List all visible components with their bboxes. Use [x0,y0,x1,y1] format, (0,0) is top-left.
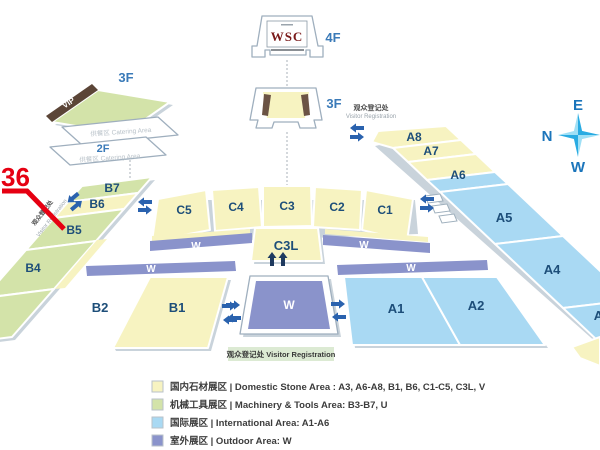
legend-swatch-outdoor [152,435,163,446]
exhibition-floor-plan: WSC 4F 3F VIP 3F 供餐区 Catering Area 2F 供餐… [0,0,600,450]
w-bar-right-1-label: W [359,240,369,251]
hall-a4-label: A4 [544,262,561,277]
hall-b7-label: B7 [104,181,120,195]
hall-c1-label: C1 [377,203,393,217]
a1-a2-block: A1 A2 [344,277,548,348]
hall-c3-label: C3 [279,199,295,213]
floor-plan-svg: WSC 4F 3F VIP 3F 供餐区 Catering Area 2F 供餐… [0,0,600,450]
hall-a6-label: A6 [450,168,466,182]
hall-b4-label: B4 [25,261,41,275]
hall-b5-label: B5 [66,223,82,237]
legend-swatch-international [152,417,163,428]
wsc-title: WSC [271,29,304,44]
b1-b2-block: B2 B1 [41,277,237,351]
hall-b1-label: B1 [169,300,186,315]
hall-a3-domestic [572,337,600,366]
a-visitor-registration-en: Visitor Registration [346,114,396,120]
w-outdoor-area: W 观众登记处 Visitor Registration [226,276,346,361]
hall-a8-label: A8 [406,130,422,144]
catering-floor-label: 2F [97,143,110,155]
w-bar-left-1-label: W [191,241,201,252]
v-floor-label: 3F [326,96,341,111]
compass-n-label: N [542,128,553,145]
u-floor-label: 3F [118,70,133,85]
hall-b2-label: B2 [92,300,109,315]
hall-a7-label: A7 [423,144,439,158]
hall-c5-label: C5 [176,203,192,217]
legend-swatch-machinery [152,399,163,410]
hall-b6-label: B6 [89,197,105,211]
hall-c4-label: C4 [228,200,244,214]
wsc-small-caption-bottom [271,49,304,51]
compass-w-label: W [571,159,586,176]
legend: 国内石材展区 | Domestic Stone Area : A3, A6-A8… [152,381,486,447]
hall-a2-label: A2 [468,298,485,313]
legend-international-label: 国际展区 | International Area: A1-A6 [170,418,329,429]
hall-c3l-label: C3L [274,238,299,253]
legend-swatch-domestic [152,381,163,392]
wsc-building: WSC 4F [252,16,341,57]
legend-machinery-label: 机械工具展区 | Machinery & Tools Area: B3-B7, … [170,399,388,411]
wsc-floor-label: 4F [325,30,340,45]
legend-outdoor-label: 室外展区 | Outdoor Area: W [170,435,292,447]
compass-e-label: E [573,97,583,114]
hall-a1-label: A1 [388,301,405,316]
legend-domestic-label: 国内石材展区 | Domestic Stone Area : A3, A6-A8… [170,381,486,393]
w-bar-right-2-label: W [406,263,416,274]
callout-36: 36 [1,162,64,229]
hall-a3-label: A3 [594,308,600,323]
a-visitor-registration-cn: 观众登记处 [354,103,390,112]
compass-icon: E N W [542,97,600,176]
w-bar-left-2-label: W [146,264,156,275]
visitor-registration-badge-label: 观众登记处 Visitor Registration [227,349,336,359]
w-bar-left-2 [86,261,236,276]
hall-c2-label: C2 [329,200,345,214]
w-outdoor-label: W [283,298,295,312]
hall-a5-label: A5 [496,210,513,225]
v-building: 3F [250,88,342,128]
a8-entrance-arrows-icon [350,123,364,141]
callout-36-label: 36 [1,162,30,192]
c5-side-arrows-icon [138,197,152,214]
wsc-small-caption-top [281,24,293,26]
c3l-hall: C3L [251,228,325,266]
c1-side-arrows-icon [420,194,434,212]
